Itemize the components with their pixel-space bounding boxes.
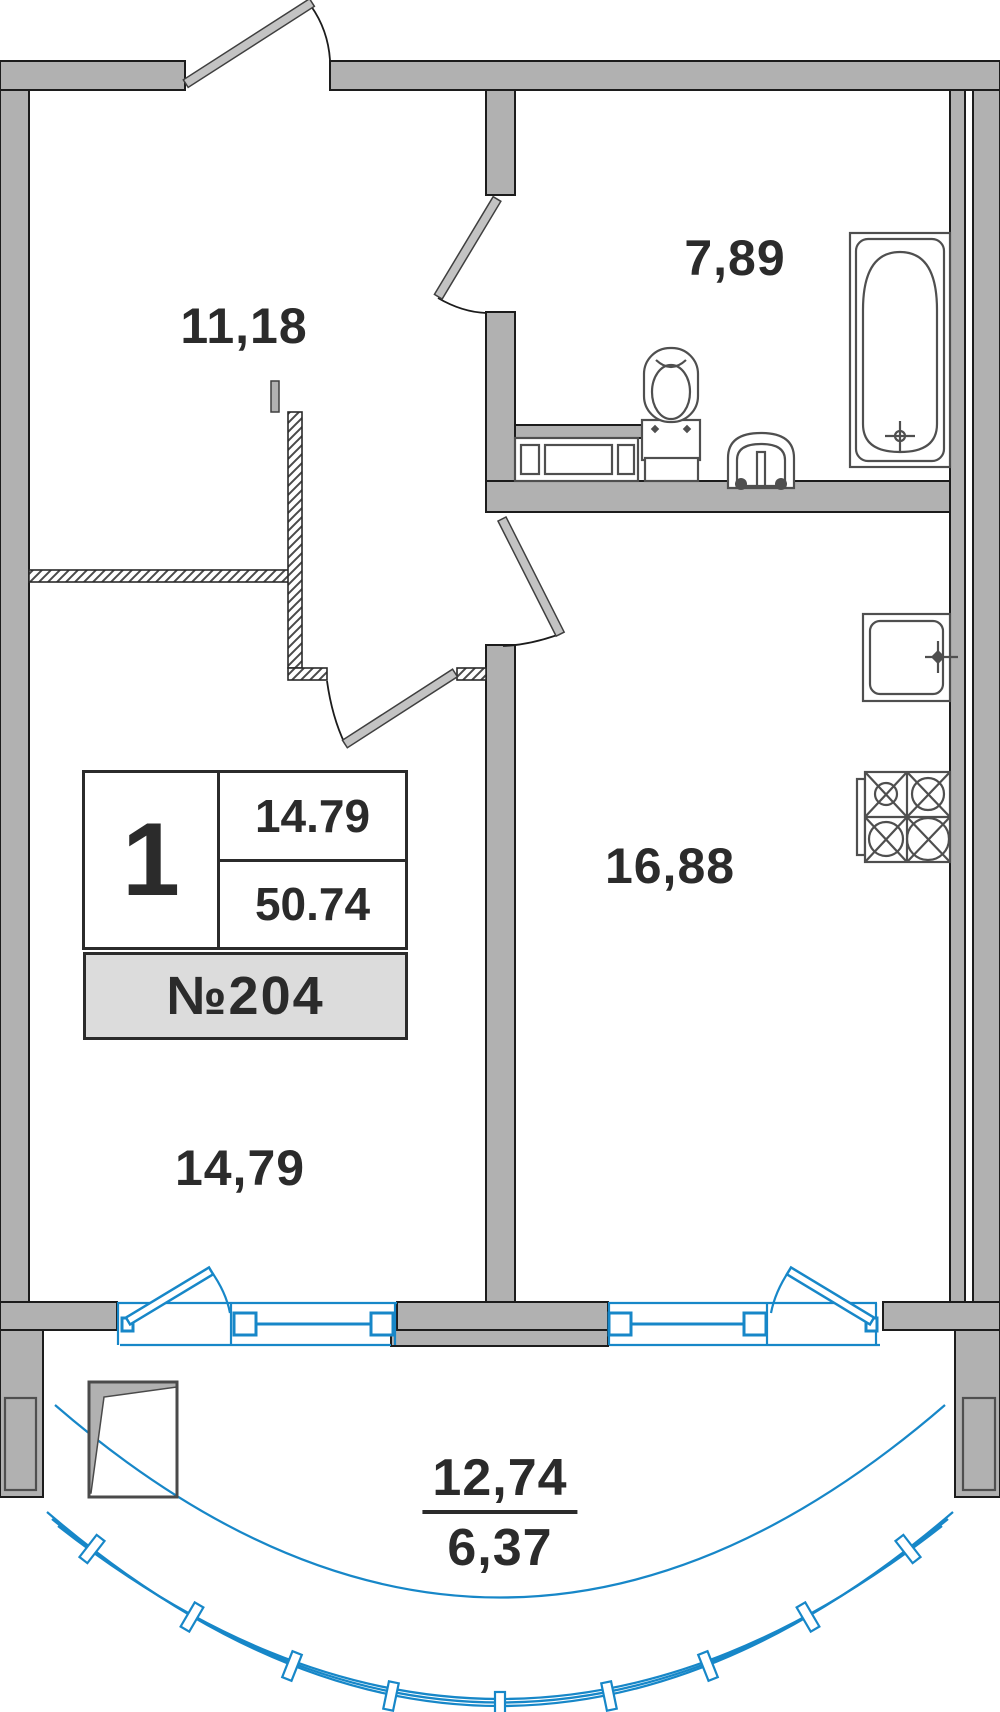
balcony-area-total-label: 12,74 (422, 1448, 577, 1514)
balcony-window-left (117, 1267, 397, 1345)
faucet-icon (757, 452, 765, 486)
bathtub (850, 233, 950, 467)
floor-plan: 11,18 7,89 16,88 14,79 12,74 6,37 1 14.7… (0, 0, 1000, 1712)
toilet (642, 348, 700, 481)
hallway-area-label: 11,18 (180, 297, 307, 355)
rooms-count: 1 (85, 773, 220, 947)
interior-walls (271, 90, 950, 1302)
entrance-door (183, 0, 330, 87)
apartment-info-box: 1 14.79 50.74 (82, 770, 408, 950)
bathroom-area-label: 7,89 (684, 229, 785, 287)
kitchen-sink (863, 614, 958, 701)
balcony-screen (89, 1382, 177, 1497)
living-room-door (327, 669, 457, 748)
kitchen-door (498, 517, 564, 646)
stove (857, 772, 950, 862)
living-area-value: 14.79 (220, 773, 405, 862)
kitchen-area-label: 16,88 (605, 837, 735, 895)
total-area-value: 50.74 (220, 862, 405, 948)
partition-walls-hatched (29, 412, 486, 680)
bathroom-door (434, 197, 500, 313)
washbasin (728, 433, 794, 490)
balcony-window-right (608, 1267, 880, 1345)
apartment-number-badge: №204 (83, 952, 408, 1040)
bathroom-cabinet (515, 438, 638, 481)
living-room-area-label: 14,79 (175, 1139, 305, 1197)
balcony-area-coef-label: 6,37 (447, 1518, 552, 1578)
